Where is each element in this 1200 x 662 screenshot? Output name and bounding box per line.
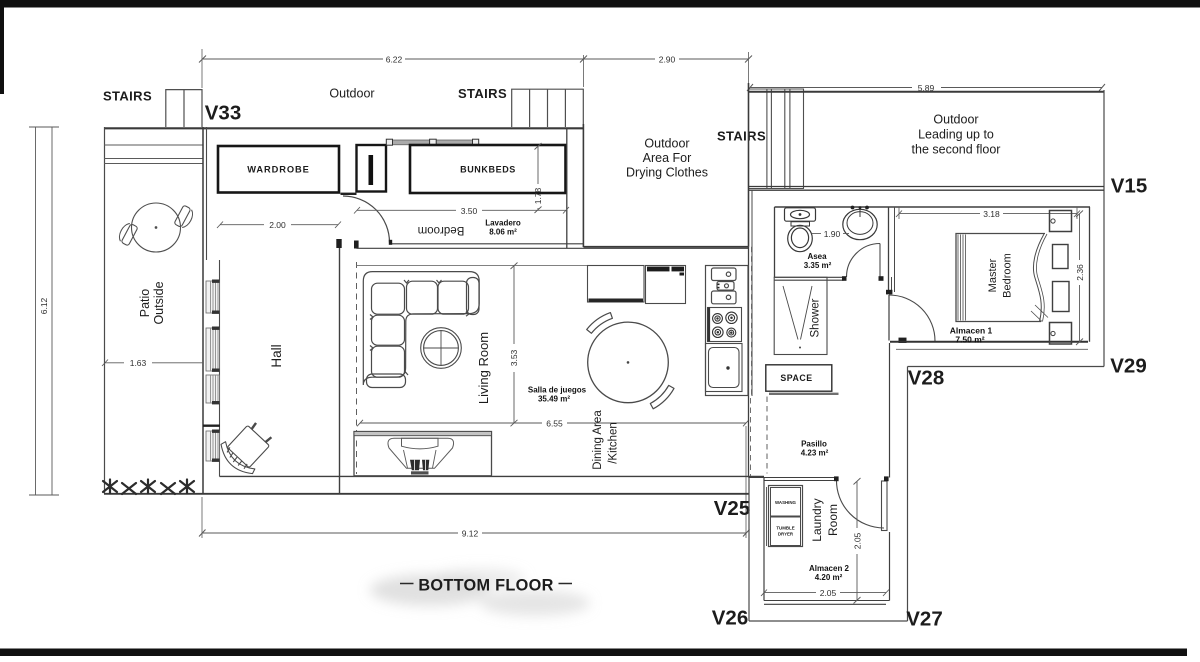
svg-text:V28: V28 xyxy=(908,367,944,390)
svg-text:6.55: 6.55 xyxy=(546,419,563,429)
svg-text:SPACE: SPACE xyxy=(780,373,812,383)
svg-text:Bedroom: Bedroom xyxy=(1002,253,1014,298)
svg-text:1.63: 1.63 xyxy=(130,358,147,368)
svg-text:V26: V26 xyxy=(712,607,748,630)
svg-text:STAIRS: STAIRS xyxy=(717,129,766,144)
svg-text:V25: V25 xyxy=(714,497,750,520)
svg-text:Room: Room xyxy=(826,504,840,536)
svg-text:Dining Area: Dining Area xyxy=(592,410,604,470)
svg-text:Area For: Area For xyxy=(643,151,692,165)
svg-text:Salla de juegos: Salla de juegos xyxy=(528,386,587,395)
svg-text:7.50 m²: 7.50 m² xyxy=(955,335,984,345)
svg-text:9.12: 9.12 xyxy=(462,529,479,539)
svg-text:Pasillo: Pasillo xyxy=(801,440,827,449)
svg-text:Drying Clothes: Drying Clothes xyxy=(626,166,708,180)
svg-text:V33: V33 xyxy=(205,102,241,125)
svg-text:the second floor: the second floor xyxy=(912,143,1001,157)
svg-text:TUMBLE: TUMBLE xyxy=(776,526,794,531)
svg-text:1.90: 1.90 xyxy=(824,229,841,239)
svg-text:V29: V29 xyxy=(1110,355,1146,378)
svg-text:2.00: 2.00 xyxy=(269,220,286,230)
svg-text:8.06 m²: 8.06 m² xyxy=(489,228,517,237)
svg-text:Asea: Asea xyxy=(807,252,827,261)
svg-text:Outdoor: Outdoor xyxy=(644,137,689,151)
svg-text:2.36: 2.36 xyxy=(1075,264,1085,281)
svg-text:3.53: 3.53 xyxy=(509,349,519,366)
svg-text:6.22: 6.22 xyxy=(386,55,403,65)
svg-text:STAIRS: STAIRS xyxy=(103,89,152,104)
svg-text:3.50: 3.50 xyxy=(461,206,478,216)
svg-text:Lavadero: Lavadero xyxy=(485,219,521,228)
svg-text:BUNKBEDS: BUNKBEDS xyxy=(460,165,516,175)
svg-text:WASHING: WASHING xyxy=(775,500,797,505)
svg-text:Almacen 2: Almacen 2 xyxy=(809,564,850,573)
svg-text:1.78: 1.78 xyxy=(533,187,543,204)
svg-text:Outside: Outside xyxy=(152,281,166,324)
svg-text:Laundry: Laundry xyxy=(810,498,824,541)
svg-text:WARDROBE: WARDROBE xyxy=(247,165,309,175)
svg-text:4.23 m²: 4.23 m² xyxy=(801,449,829,458)
svg-text:Bedroom: Bedroom xyxy=(418,224,465,236)
svg-text:6.12: 6.12 xyxy=(39,297,49,314)
svg-text:Outdoor: Outdoor xyxy=(329,87,374,101)
svg-text:Shower: Shower xyxy=(810,298,822,337)
svg-text:3.18: 3.18 xyxy=(983,209,1000,219)
svg-text:Leading up to: Leading up to xyxy=(918,128,994,142)
svg-text:Living Room: Living Room xyxy=(476,332,491,404)
svg-text:2.05: 2.05 xyxy=(853,532,863,549)
svg-text:Hall: Hall xyxy=(269,344,284,367)
svg-text:3.35 m²: 3.35 m² xyxy=(804,261,832,270)
svg-text:Master: Master xyxy=(987,258,999,292)
svg-text:2.05: 2.05 xyxy=(820,588,837,598)
svg-text:/Kitchen: /Kitchen xyxy=(608,422,620,464)
svg-text:V27: V27 xyxy=(906,608,942,631)
svg-text:Patio: Patio xyxy=(138,289,152,318)
svg-text:Outdoor: Outdoor xyxy=(933,113,978,127)
svg-text:BOTTOM FLOOR: BOTTOM FLOOR xyxy=(418,577,553,595)
svg-text:STAIRS: STAIRS xyxy=(458,86,507,101)
svg-text:DRYER: DRYER xyxy=(778,532,794,537)
svg-text:4.20 m²: 4.20 m² xyxy=(815,573,843,582)
svg-text:35.49 m²: 35.49 m² xyxy=(538,395,570,404)
svg-text:V15: V15 xyxy=(1111,175,1147,198)
svg-text:2.90: 2.90 xyxy=(659,55,676,65)
